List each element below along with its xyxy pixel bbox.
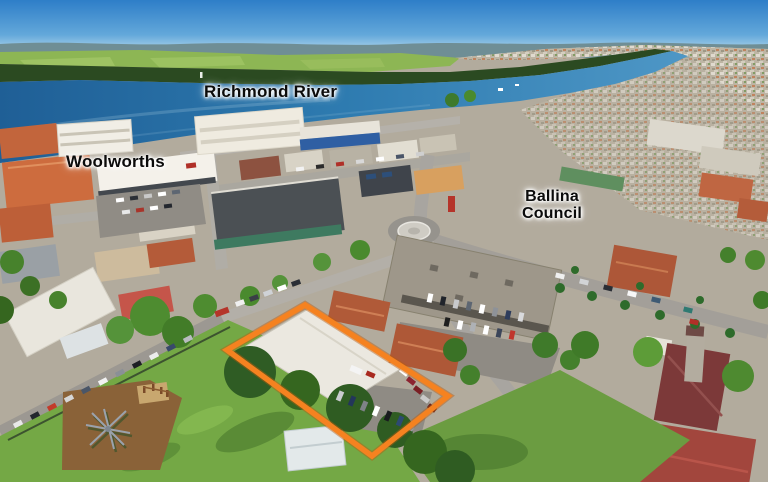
label-ballina-council-line1: Ballina	[512, 188, 592, 205]
aerial-photo-scene	[0, 0, 768, 482]
label-woolworths: Woolworths	[66, 152, 165, 172]
label-ballina-council-line2: Council	[512, 205, 592, 222]
aerial-photo: Richmond River Woolworths Ballina Counci…	[0, 0, 768, 482]
apartment-building-left	[57, 119, 133, 156]
label-richmond-river: Richmond River	[204, 82, 337, 102]
label-ballina-council: Ballina Council	[512, 188, 592, 222]
